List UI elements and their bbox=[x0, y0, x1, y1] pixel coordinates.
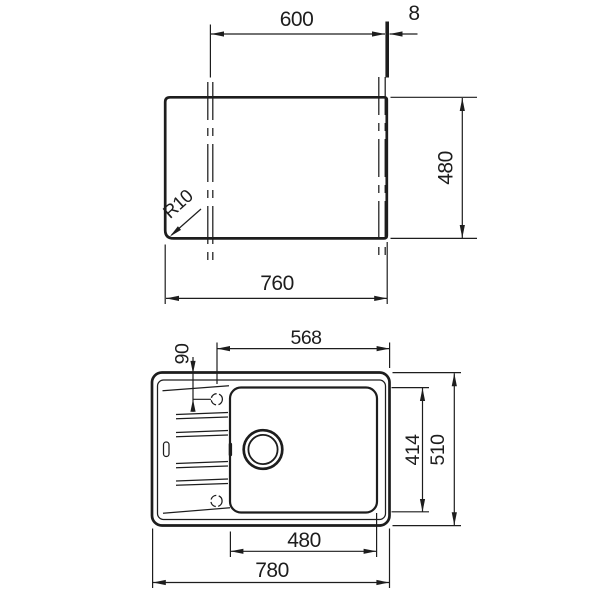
arrow-down bbox=[452, 512, 457, 525]
cut-marks-left bbox=[208, 82, 213, 260]
arrow-left bbox=[230, 549, 243, 554]
arrow-up bbox=[460, 98, 465, 111]
arrow-right bbox=[364, 549, 377, 554]
drainer-grooves bbox=[176, 413, 228, 486]
arrow-right bbox=[377, 346, 390, 351]
dim-568-label: 568 bbox=[290, 327, 321, 349]
overflow-mark bbox=[164, 442, 170, 457]
tap-hole-top bbox=[211, 394, 222, 405]
technical-drawing-canvas: 600 8 480 760 bbox=[0, 0, 600, 600]
cut-marks-right bbox=[379, 77, 385, 262]
arrow-left bbox=[211, 31, 224, 36]
bowl-outline bbox=[230, 388, 377, 513]
drain-outer-ring bbox=[244, 430, 283, 469]
arrow-up bbox=[452, 373, 457, 386]
dim-480-cutout-label: 480 bbox=[435, 151, 458, 185]
drainer-edge-bottom bbox=[163, 508, 230, 514]
drainer-edge-top bbox=[163, 386, 230, 391]
arrow-left bbox=[166, 296, 179, 301]
dim-568: 568 bbox=[217, 327, 390, 384]
cutout-outline bbox=[165, 97, 387, 238]
dim-90-label: 90 bbox=[172, 343, 194, 364]
dim-600-label: 600 bbox=[280, 8, 314, 31]
dim-8: 8 bbox=[390, 2, 420, 37]
sink-top-view: 568 90 414 510 bbox=[152, 327, 461, 588]
arrow-right bbox=[372, 31, 385, 36]
dim-480-bowl-label: 480 bbox=[287, 529, 321, 552]
sink-dimension-drawing: 600 8 480 760 bbox=[0, 0, 600, 600]
dim-414-label: 414 bbox=[402, 434, 424, 466]
dim-760: 760 bbox=[165, 242, 387, 304]
arrow-left bbox=[153, 580, 166, 585]
arrow-bottom bbox=[190, 399, 195, 412]
arrow-left bbox=[390, 31, 403, 36]
dim-90: 90 bbox=[172, 343, 212, 412]
dim-780: 780 bbox=[153, 529, 390, 589]
bowl-edge-mark bbox=[229, 443, 232, 456]
sink-inner-outline bbox=[158, 380, 386, 520]
arrow-down bbox=[420, 499, 425, 512]
dim-8-label: 8 bbox=[408, 2, 419, 25]
dim-414: 414 bbox=[392, 388, 430, 512]
drain-inner-ring bbox=[248, 435, 277, 464]
arrow-down bbox=[460, 225, 465, 238]
dim-510-label: 510 bbox=[427, 434, 449, 466]
dim-780-label: 780 bbox=[255, 559, 289, 582]
dim-600: 600 bbox=[211, 8, 385, 37]
dim-760-label: 760 bbox=[260, 272, 294, 295]
arrow-left bbox=[217, 346, 230, 351]
arrow-right bbox=[376, 580, 389, 585]
arrow-up bbox=[420, 388, 425, 401]
sink-outer-outline bbox=[152, 373, 390, 526]
dim-480-cutout: 480 bbox=[391, 97, 478, 238]
cutout-top-view: 600 8 480 760 bbox=[159, 2, 477, 304]
tap-hole-bottom bbox=[211, 495, 222, 506]
arrow-right bbox=[374, 296, 387, 301]
